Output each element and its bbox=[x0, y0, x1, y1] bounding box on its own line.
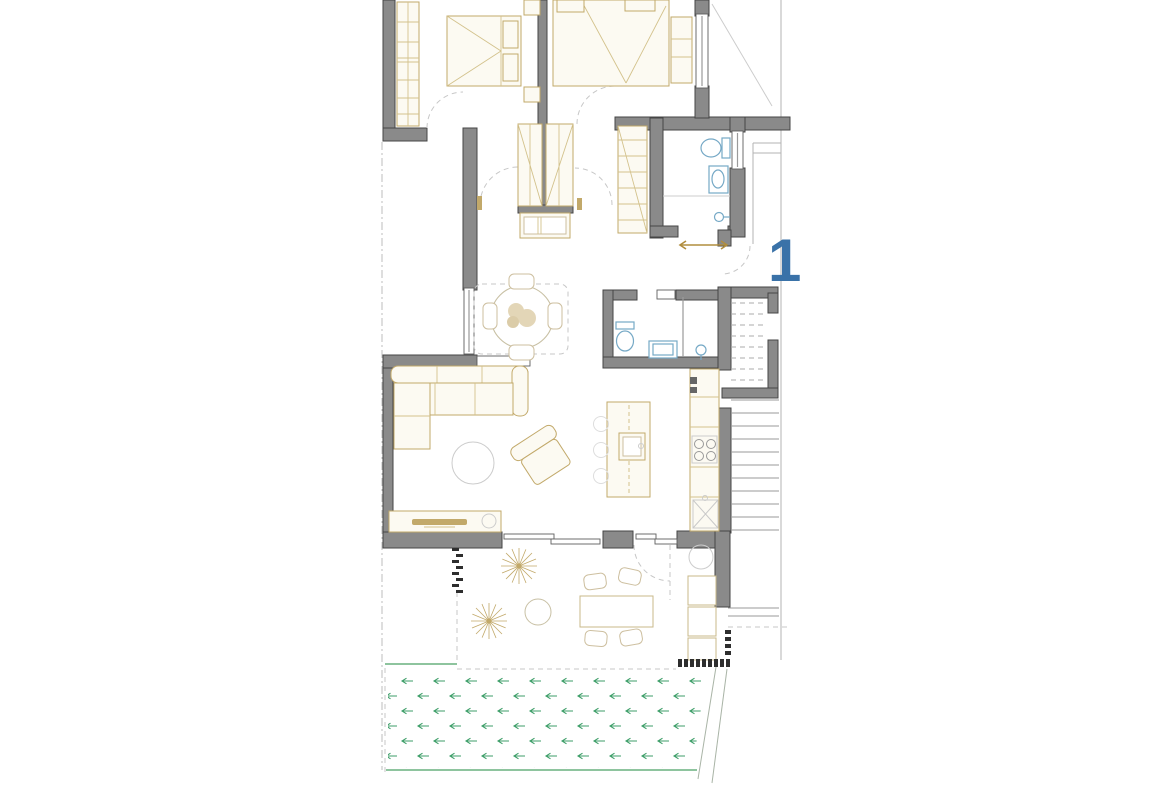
shower-stall bbox=[683, 297, 706, 360]
toilet bbox=[616, 322, 634, 351]
round-side-table bbox=[525, 599, 551, 625]
chair bbox=[483, 303, 497, 329]
planter-box bbox=[688, 638, 716, 660]
dining-area bbox=[474, 274, 568, 360]
bathroom1-window bbox=[732, 131, 743, 169]
island bbox=[607, 402, 650, 497]
floor-plan-page: 1 bbox=[0, 0, 1170, 785]
nightstand bbox=[524, 0, 540, 15]
corner-sofa bbox=[391, 366, 528, 449]
wardrobe-b bbox=[546, 124, 573, 206]
dresser bbox=[671, 17, 692, 83]
door-handle bbox=[577, 198, 582, 210]
outdoor-chair bbox=[618, 567, 643, 586]
palm-tree bbox=[465, 597, 512, 644]
wardrobe-a bbox=[518, 124, 542, 206]
kitchen-terrace-door bbox=[636, 534, 677, 544]
planter-pot bbox=[689, 545, 713, 569]
garden-lawn bbox=[385, 664, 727, 783]
bedroom-1 bbox=[397, 0, 540, 126]
living-room bbox=[389, 366, 575, 532]
grass-field bbox=[388, 671, 706, 768]
small-appliance bbox=[690, 387, 697, 393]
hall-dresser bbox=[520, 213, 570, 238]
hallway-closets bbox=[477, 124, 647, 238]
bedroom-2 bbox=[553, 0, 692, 86]
toilet bbox=[701, 138, 730, 158]
unit-number-label: 1 bbox=[768, 227, 801, 294]
double-bed bbox=[553, 0, 669, 86]
counter bbox=[690, 369, 719, 531]
dining-window bbox=[464, 288, 474, 354]
coffee-table bbox=[452, 442, 494, 484]
bathroom2-pocket-door bbox=[657, 290, 675, 299]
kitchen bbox=[594, 369, 720, 531]
outdoor-chair bbox=[584, 630, 607, 647]
wardrobe bbox=[397, 2, 419, 126]
small-appliance bbox=[690, 377, 697, 384]
outdoor-chair bbox=[583, 573, 607, 591]
tall-wardrobe bbox=[618, 126, 647, 233]
chair bbox=[548, 303, 562, 329]
bedroom2-window bbox=[696, 14, 708, 88]
shower-head bbox=[715, 213, 731, 222]
chair bbox=[509, 274, 534, 289]
door-handle bbox=[477, 196, 482, 210]
planter-box bbox=[688, 607, 716, 636]
bar-stool bbox=[594, 417, 609, 432]
living-sliding-door bbox=[504, 534, 600, 544]
armchair bbox=[509, 423, 575, 488]
outdoor-chair bbox=[619, 628, 643, 647]
washbasin bbox=[709, 166, 728, 193]
planter-box bbox=[688, 576, 716, 605]
upper-flight-dashed bbox=[731, 303, 767, 380]
bar-stool bbox=[594, 443, 609, 458]
floor-plan-drawing: 1 bbox=[0, 0, 1170, 785]
chair bbox=[509, 345, 534, 360]
terrace bbox=[457, 542, 716, 664]
washbasin bbox=[649, 341, 677, 358]
bar-stool bbox=[594, 469, 609, 484]
palm-tree bbox=[495, 542, 542, 589]
nightstand bbox=[524, 87, 540, 102]
tv-sideboard bbox=[389, 511, 501, 532]
tv bbox=[412, 519, 467, 525]
outdoor-dining-table bbox=[580, 596, 653, 627]
double-bed bbox=[447, 16, 521, 86]
